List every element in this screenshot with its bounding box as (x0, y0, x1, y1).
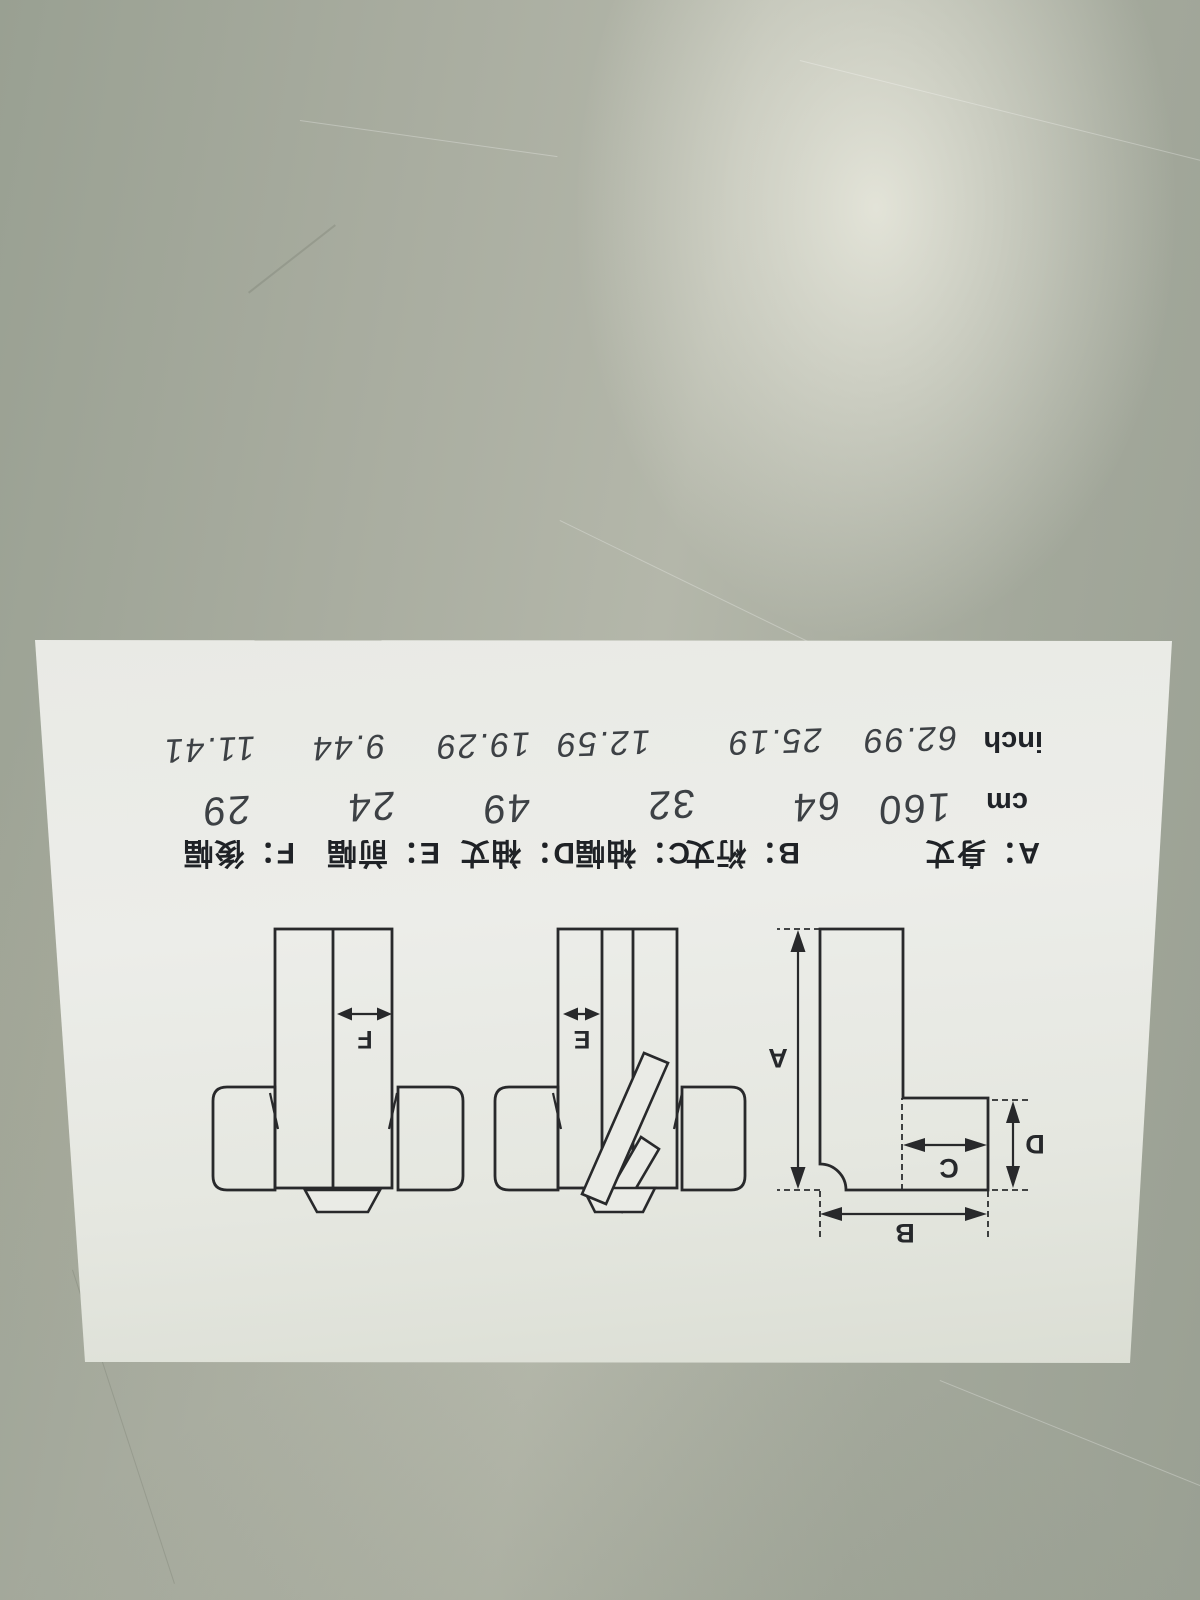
value-inch-B: 25.19 (725, 719, 825, 762)
right-sleeve (495, 1087, 558, 1190)
unit-label-cm: cm (986, 785, 1028, 818)
dimension-arrow-A (791, 930, 806, 1189)
label-F: F (357, 1025, 372, 1053)
dimension-arrow-F (337, 1008, 392, 1021)
label-B: B (895, 1218, 915, 1247)
surface-scratch (248, 224, 336, 293)
label-C: C (939, 1153, 959, 1183)
dimension-arrow-E (563, 1008, 600, 1021)
value-cm-C: 32 (645, 780, 696, 828)
dimension-arrow-C (903, 1138, 987, 1152)
paper-rotated-180: A B C D (35, 640, 1172, 1363)
legend-item-A: A：身丈 (924, 834, 1040, 878)
surface-scratch (300, 120, 558, 157)
value-inch-F: 11.41 (160, 727, 257, 769)
body-panel-outline (820, 929, 988, 1190)
value-cm-F: 29 (200, 786, 251, 834)
kimono-body-panel-diagram: A B C D (763, 917, 1053, 1247)
unit-label-inch: inch (983, 724, 1043, 757)
surface-scratch (800, 60, 1200, 163)
legend-item-C: C：袖幅 (574, 834, 690, 878)
left-sleeve (398, 1087, 463, 1190)
label-D: D (1025, 1129, 1045, 1159)
value-cm-B: 64 (790, 782, 841, 830)
kimono-front-diagram: E (480, 925, 750, 1225)
value-cm-E: 24 (345, 782, 396, 830)
value-cm-A: 160 (876, 783, 951, 832)
value-inch-E: 9.44 (308, 726, 387, 768)
legend-item-D: D：袖丈 (459, 834, 575, 878)
value-inch-D: 19.29 (433, 723, 533, 766)
value-cm-D: 49 (480, 784, 531, 832)
surface-scratch (940, 1380, 1200, 1493)
left-sleeve (682, 1087, 745, 1190)
paper-content: A B C D (38, 642, 1158, 1342)
label-E: E (574, 1025, 591, 1053)
label-A: A (768, 1043, 788, 1073)
legend-item-E: E：前幅 (326, 834, 440, 878)
value-inch-A: 62.99 (860, 717, 960, 760)
value-inch-C: 12.59 (553, 721, 653, 764)
dimension-arrow-D (1006, 1101, 1020, 1188)
measurement-sheet-paper: A B C D (35, 640, 1172, 1363)
back-collar (305, 1190, 380, 1212)
right-sleeve (213, 1087, 275, 1190)
kimono-back-diagram: F (195, 925, 465, 1225)
photo-of-paper-on-metal-surface: A B C D (0, 0, 1200, 1600)
legend-item-F: F：後幅 (183, 834, 295, 878)
legend-item-B: B：裄丈 (684, 834, 800, 878)
